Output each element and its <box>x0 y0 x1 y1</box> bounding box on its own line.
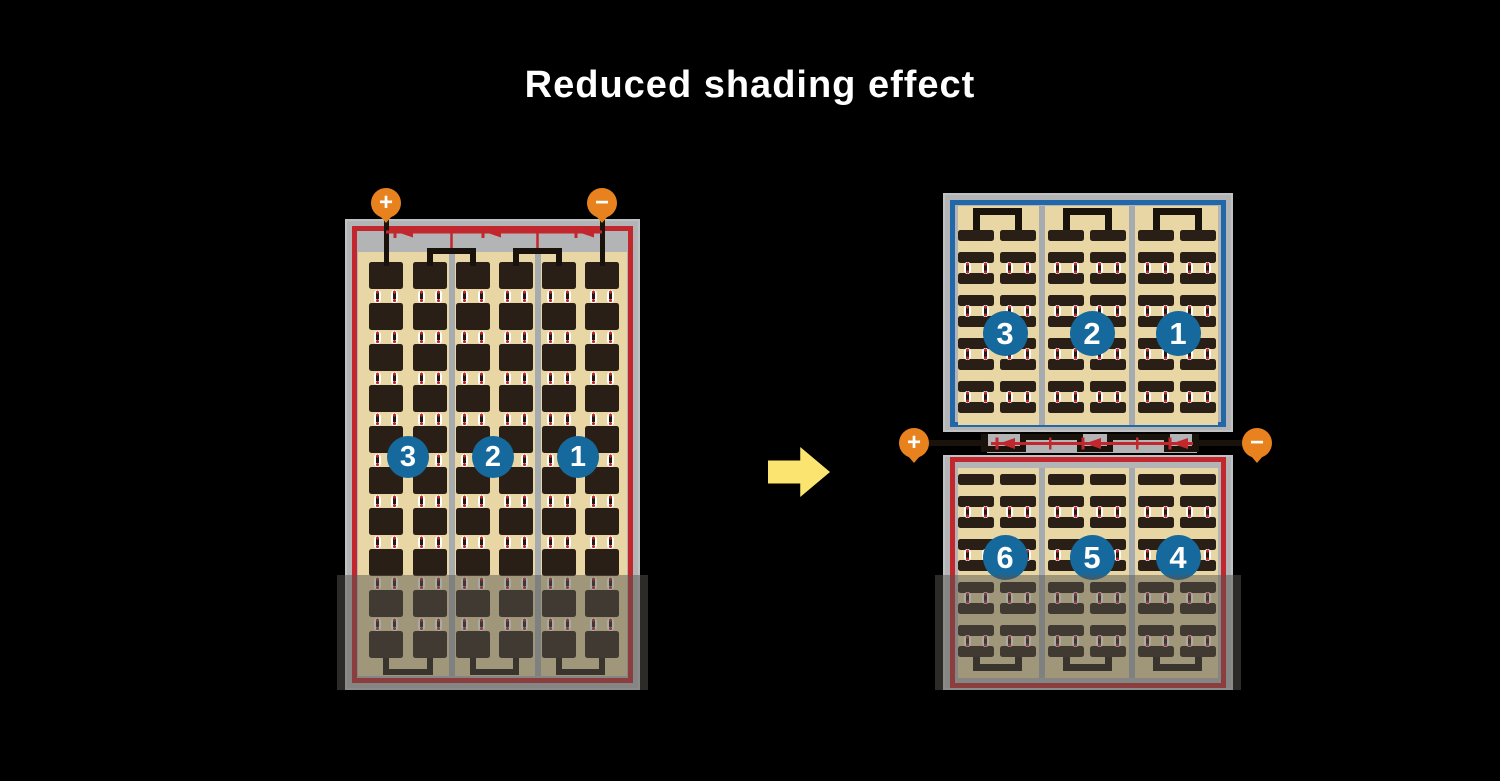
shading-overlay <box>337 575 648 690</box>
cell-interconnect-dot <box>1204 506 1211 518</box>
cell-interconnect-dot <box>564 290 571 303</box>
cell-interconnect-dot <box>607 536 614 549</box>
cell-interconnect-dot <box>391 372 398 385</box>
cell-interconnect-dot <box>982 262 989 274</box>
solar-cell <box>1090 402 1126 413</box>
cell-interconnect-dot <box>435 413 442 426</box>
cell-interconnect-dot <box>478 413 485 426</box>
cell-interconnect-dot <box>1024 262 1031 274</box>
solar-cell <box>585 385 619 412</box>
solar-cell <box>456 508 490 535</box>
solar-cell <box>456 385 490 412</box>
cell-interconnect-dot <box>504 331 511 344</box>
terminal-plus-label: + <box>379 189 393 216</box>
cell-interconnect-dot <box>1024 391 1031 403</box>
cell-interconnect-dot <box>607 454 614 467</box>
shading-overlay <box>935 575 1241 690</box>
solar-cell <box>1090 517 1126 528</box>
cell-interconnect-dot <box>1114 262 1121 274</box>
cell-interconnect-dot <box>1054 549 1061 561</box>
solar-cell <box>585 344 619 371</box>
cell-interconnect-dot <box>478 536 485 549</box>
cell-interconnect-dot <box>504 495 511 508</box>
solar-cell <box>1090 273 1126 284</box>
cell-interconnect-dot <box>504 290 511 303</box>
solar-cell <box>1000 273 1036 284</box>
solar-cell <box>1138 273 1174 284</box>
solar-cell <box>1180 295 1216 306</box>
solar-cell <box>456 262 490 289</box>
solar-cell <box>585 549 619 576</box>
solar-cell <box>1090 230 1126 241</box>
cell-interconnect-dot <box>1204 391 1211 403</box>
cell-interconnect-dot <box>478 331 485 344</box>
cell-interconnect-dot <box>461 536 468 549</box>
solar-cell <box>1180 273 1216 284</box>
cell-interconnect-dot <box>1096 391 1103 403</box>
cell-interconnect-dot <box>1162 391 1169 403</box>
solar-cell <box>456 344 490 371</box>
cell-interconnect-dot <box>607 331 614 344</box>
cell-interconnect-dot <box>607 413 614 426</box>
cell-interconnect-dot <box>547 372 554 385</box>
string-number-badge: 3 <box>983 311 1028 356</box>
split-module: + − 3 2 1 6 5 4 <box>943 193 1233 690</box>
solar-cell <box>1090 252 1126 263</box>
solar-cell <box>958 474 994 485</box>
cell-interconnect-dot <box>590 290 597 303</box>
cell-interconnect-dot <box>1096 262 1103 274</box>
solar-cell <box>958 402 994 413</box>
positive-terminal: + <box>899 428 929 458</box>
cell-interconnect-dot <box>564 372 571 385</box>
cell-interconnect-dot <box>504 372 511 385</box>
cell-interconnect-dot <box>521 290 528 303</box>
cell-interconnect-dot <box>435 454 442 467</box>
cell-interconnect-dot <box>1162 262 1169 274</box>
cell-interconnect-dot <box>590 331 597 344</box>
cell-interconnect-dot <box>564 413 571 426</box>
solar-cell <box>1090 295 1126 306</box>
solar-cell <box>1180 474 1216 485</box>
cell-interconnect-dot <box>478 372 485 385</box>
negative-terminal: − <box>1242 428 1272 458</box>
cell-interconnect-dot <box>1204 305 1211 317</box>
solar-cell <box>413 508 447 535</box>
solar-cell <box>1048 252 1084 263</box>
solar-cell <box>542 549 576 576</box>
solar-cell <box>1048 517 1084 528</box>
cell-interconnect-dot <box>964 391 971 403</box>
cell-interconnect-dot <box>521 536 528 549</box>
solar-cell <box>1000 496 1036 507</box>
cell-interconnect-dot <box>607 495 614 508</box>
cell-interconnect-dot <box>461 454 468 467</box>
cell-interconnect-dot <box>547 290 554 303</box>
solar-cell <box>1000 474 1036 485</box>
string-number-badge: 6 <box>983 535 1028 580</box>
cell-interconnect-dot <box>521 372 528 385</box>
cell-interconnect-dot <box>547 495 554 508</box>
solar-cell <box>1180 252 1216 263</box>
bridge-leg <box>1195 208 1202 230</box>
cell-interconnect-dot <box>521 331 528 344</box>
solar-cell <box>542 262 576 289</box>
cell-interconnect-dot <box>1072 391 1079 403</box>
solar-cell <box>1138 252 1174 263</box>
cell-interconnect-dot <box>521 413 528 426</box>
cell-interconnect-dot <box>1114 391 1121 403</box>
cell-interconnect-dot <box>374 413 381 426</box>
cell-interconnect-dot <box>1114 305 1121 317</box>
cell-interconnect-dot <box>1186 262 1193 274</box>
solar-cell <box>1000 252 1036 263</box>
string-number-badge: 1 <box>557 436 599 478</box>
cell-interconnect-dot <box>1096 506 1103 518</box>
solar-cell <box>1138 295 1174 306</box>
cell-interconnect-dot <box>374 331 381 344</box>
cell-interconnect-dot <box>418 290 425 303</box>
solar-cell <box>1000 381 1036 392</box>
solar-cell <box>499 262 533 289</box>
cell-interconnect-dot <box>461 290 468 303</box>
cell-interconnect-dot <box>391 331 398 344</box>
string-number-badge: 2 <box>1070 311 1115 356</box>
solar-cell <box>1138 230 1174 241</box>
solar-cell <box>1090 496 1126 507</box>
bridge-leg <box>513 252 519 266</box>
cell-interconnect-dot <box>547 331 554 344</box>
solar-cell <box>413 262 447 289</box>
cell-interconnect-dot <box>391 413 398 426</box>
cell-interconnect-dot <box>964 305 971 317</box>
solar-cell <box>1000 359 1036 370</box>
cell-interconnect-dot <box>504 413 511 426</box>
bridge-leg <box>470 252 476 266</box>
solar-cell <box>456 549 490 576</box>
solar-cell <box>1090 381 1126 392</box>
cell-interconnect-dot <box>1204 348 1211 360</box>
cell-interconnect-dot <box>461 372 468 385</box>
solar-cell <box>413 549 447 576</box>
solar-cell <box>958 381 994 392</box>
solar-cell <box>499 303 533 330</box>
terminal-lead-wire <box>929 440 981 446</box>
page-title: Reduced shading effect <box>0 64 1500 107</box>
solar-cell <box>1048 273 1084 284</box>
solar-cell <box>369 385 403 412</box>
solar-cell <box>1138 402 1174 413</box>
solar-cell <box>413 344 447 371</box>
cell-interconnect-dot <box>982 348 989 360</box>
cell-interconnect-dot <box>435 372 442 385</box>
string-number-badge: 1 <box>1156 311 1201 356</box>
cell-interconnect-dot <box>418 536 425 549</box>
solar-cell <box>499 549 533 576</box>
solar-cell <box>1048 359 1084 370</box>
cell-interconnect-dot <box>374 290 381 303</box>
cell-interconnect-dot <box>1114 506 1121 518</box>
cell-interconnect-dot <box>1144 391 1151 403</box>
cell-interconnect-dot <box>418 495 425 508</box>
bridge-leg <box>973 208 980 230</box>
solar-cell <box>1000 402 1036 413</box>
cell-interconnect-dot <box>1144 348 1151 360</box>
bridge-leg <box>1105 208 1112 230</box>
cell-interconnect-dot <box>1204 549 1211 561</box>
cell-interconnect-dot <box>1072 262 1079 274</box>
solar-cell <box>1138 517 1174 528</box>
cell-interconnect-dot <box>1144 305 1151 317</box>
cell-interconnect-dot <box>964 262 971 274</box>
solar-cell <box>1090 359 1126 370</box>
solar-cell <box>499 508 533 535</box>
solar-cell <box>1000 295 1036 306</box>
solar-cell <box>1000 230 1036 241</box>
solar-cell <box>958 230 994 241</box>
cell-interconnect-dot <box>418 413 425 426</box>
cell-interconnect-dot <box>521 495 528 508</box>
cell-interconnect-dot <box>1162 506 1169 518</box>
negative-terminal: − <box>587 188 617 218</box>
cell-interconnect-dot <box>547 413 554 426</box>
cell-interconnect-dot <box>374 454 381 467</box>
solar-cell <box>542 385 576 412</box>
solar-cell <box>1180 381 1216 392</box>
cell-interconnect-dot <box>1006 391 1013 403</box>
terminal-minus-label: − <box>595 189 609 216</box>
string-number-badge: 5 <box>1070 535 1115 580</box>
solar-cell <box>1180 230 1216 241</box>
string-number-badge: 3 <box>387 436 429 478</box>
solar-cell <box>958 517 994 528</box>
cell-interconnect-dot <box>1054 506 1061 518</box>
solar-cell <box>958 273 994 284</box>
bypass-diode-bus-icon <box>381 223 611 249</box>
cell-interconnect-dot <box>607 372 614 385</box>
bridge-leg <box>1153 208 1160 230</box>
cell-interconnect-dot <box>1114 348 1121 360</box>
solar-cell <box>413 303 447 330</box>
cell-interconnect-dot <box>1204 262 1211 274</box>
cell-interconnect-dot <box>418 331 425 344</box>
solar-cell <box>1180 359 1216 370</box>
cell-interconnect-dot <box>564 495 571 508</box>
cell-interconnect-dot <box>564 536 571 549</box>
solar-cell <box>1048 381 1084 392</box>
solar-cell <box>1000 517 1036 528</box>
solar-cell <box>542 344 576 371</box>
solar-cell <box>456 303 490 330</box>
cell-interconnect-dot <box>435 290 442 303</box>
solar-cell <box>1138 496 1174 507</box>
solar-cell <box>1048 230 1084 241</box>
cell-interconnect-dot <box>1006 506 1013 518</box>
bypass-diode-bus-icon <box>987 434 1197 453</box>
solar-cell <box>958 496 994 507</box>
cell-interconnect-dot <box>964 348 971 360</box>
cell-interconnect-dot <box>607 290 614 303</box>
cell-interconnect-dot <box>374 495 381 508</box>
cell-interconnect-dot <box>435 495 442 508</box>
cell-interconnect-dot <box>1144 549 1151 561</box>
cell-interconnect-dot <box>590 495 597 508</box>
cell-interconnect-dot <box>964 506 971 518</box>
solar-cell <box>958 359 994 370</box>
cell-interconnect-dot <box>590 413 597 426</box>
cell-interconnect-dot <box>1024 348 1031 360</box>
column-separator <box>1039 206 1045 425</box>
transform-arrow-icon <box>768 447 830 497</box>
cell-interconnect-dot <box>1186 391 1193 403</box>
solar-cell <box>369 303 403 330</box>
cell-interconnect-dot <box>547 454 554 467</box>
solar-cell <box>1048 402 1084 413</box>
solar-cell <box>1138 381 1174 392</box>
solar-cell <box>542 303 576 330</box>
terminal-plus-label: + <box>907 429 921 456</box>
solar-cell <box>958 252 994 263</box>
cell-interconnect-dot <box>547 536 554 549</box>
cell-interconnect-dot <box>478 495 485 508</box>
cell-interconnect-dot <box>590 372 597 385</box>
positive-terminal: + <box>371 188 401 218</box>
solar-cell <box>369 262 403 289</box>
solar-cell <box>1180 496 1216 507</box>
solar-cell <box>1180 402 1216 413</box>
cell-interconnect-dot <box>1072 305 1079 317</box>
cell-interconnect-dot <box>435 331 442 344</box>
left-module: + − 3 2 1 <box>345 219 640 690</box>
cell-interconnect-dot <box>391 536 398 549</box>
solar-cell <box>1138 474 1174 485</box>
solar-cell <box>499 385 533 412</box>
cell-interconnect-dot <box>982 305 989 317</box>
solar-cell <box>585 508 619 535</box>
terminal-lead-wire <box>1199 440 1243 446</box>
solar-cell <box>369 508 403 535</box>
solar-cell <box>413 385 447 412</box>
solar-cell <box>1048 474 1084 485</box>
solar-cell <box>1048 295 1084 306</box>
string-number-badge: 2 <box>472 436 514 478</box>
cell-interconnect-dot <box>374 372 381 385</box>
cell-interconnect-dot <box>521 454 528 467</box>
solar-cell <box>958 295 994 306</box>
cell-interconnect-dot <box>504 536 511 549</box>
cell-interconnect-dot <box>1024 305 1031 317</box>
bridge-leg <box>1015 208 1022 230</box>
solar-cell <box>585 303 619 330</box>
cell-interconnect-dot <box>1054 348 1061 360</box>
cell-interconnect-dot <box>1054 262 1061 274</box>
solar-cell <box>542 508 576 535</box>
column-separator <box>1129 206 1135 425</box>
cell-interconnect-dot <box>982 506 989 518</box>
cell-interconnect-dot <box>964 549 971 561</box>
cell-interconnect-dot <box>374 536 381 549</box>
string-number-badge: 4 <box>1156 535 1201 580</box>
solar-cell <box>585 262 619 289</box>
cell-interconnect-dot <box>1054 391 1061 403</box>
solar-cell <box>1138 359 1174 370</box>
cell-interconnect-dot <box>564 331 571 344</box>
solar-cell <box>1090 474 1126 485</box>
cell-interconnect-dot <box>391 495 398 508</box>
cell-interconnect-dot <box>435 536 442 549</box>
diagram-canvas: Reduced shading effect + − 3 2 1 <box>0 0 1500 781</box>
cell-interconnect-dot <box>1054 305 1061 317</box>
solar-cell <box>499 344 533 371</box>
bridge-leg <box>1063 208 1070 230</box>
cell-interconnect-dot <box>1006 262 1013 274</box>
cell-interconnect-dot <box>982 391 989 403</box>
cell-interconnect-dot <box>1072 506 1079 518</box>
cell-interconnect-dot <box>1144 506 1151 518</box>
cell-interconnect-dot <box>1144 262 1151 274</box>
cell-interconnect-dot <box>461 331 468 344</box>
cell-interconnect-dot <box>461 495 468 508</box>
solar-cell <box>369 549 403 576</box>
cell-interconnect-dot <box>478 290 485 303</box>
bridge-leg <box>556 252 562 266</box>
bridge-leg <box>427 252 433 266</box>
solar-cell <box>369 344 403 371</box>
cell-interconnect-dot <box>461 413 468 426</box>
terminal-minus-label: − <box>1250 429 1264 456</box>
cell-interconnect-dot <box>1114 549 1121 561</box>
cell-interconnect-dot <box>590 536 597 549</box>
cell-interconnect-dot <box>1024 506 1031 518</box>
solar-cell <box>1180 517 1216 528</box>
cell-interconnect-dot <box>418 372 425 385</box>
solar-cell <box>1048 496 1084 507</box>
cell-interconnect-dot <box>1186 506 1193 518</box>
cell-interconnect-dot <box>391 290 398 303</box>
